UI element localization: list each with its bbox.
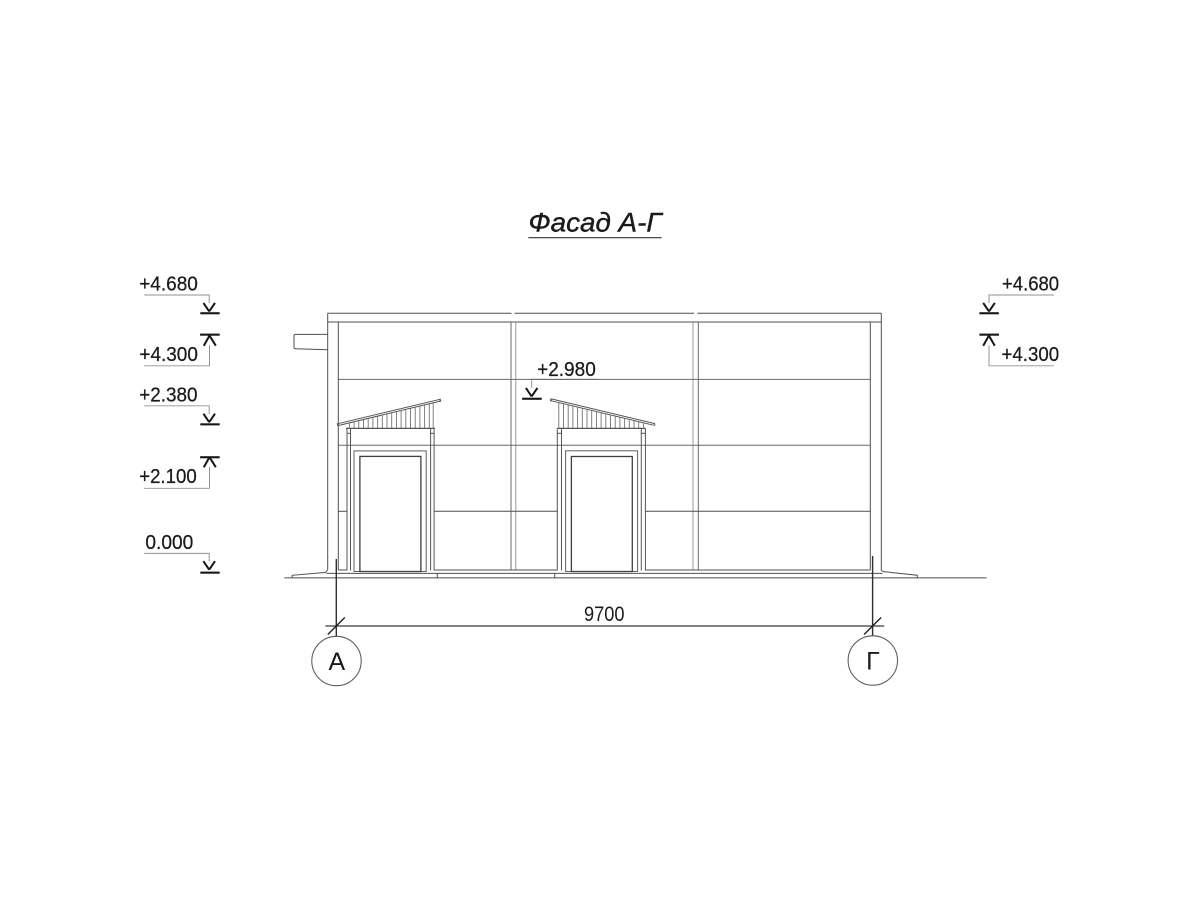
- svg-text:А: А: [328, 648, 345, 676]
- svg-text:+4.300: +4.300: [1002, 343, 1060, 366]
- svg-text:+2.380: +2.380: [139, 383, 197, 406]
- svg-text:+2.100: +2.100: [139, 465, 197, 488]
- svg-text:+2.980: +2.980: [537, 358, 596, 381]
- svg-text:+4.680: +4.680: [1002, 272, 1059, 295]
- svg-text:+4.680: +4.680: [139, 272, 198, 295]
- svg-text:0.000: 0.000: [145, 531, 193, 554]
- svg-text:Фасад А-Г: Фасад А-Г: [529, 207, 665, 237]
- svg-text:Г: Г: [866, 647, 880, 675]
- svg-text:+4.300: +4.300: [139, 343, 198, 366]
- svg-text:9700: 9700: [584, 603, 625, 626]
